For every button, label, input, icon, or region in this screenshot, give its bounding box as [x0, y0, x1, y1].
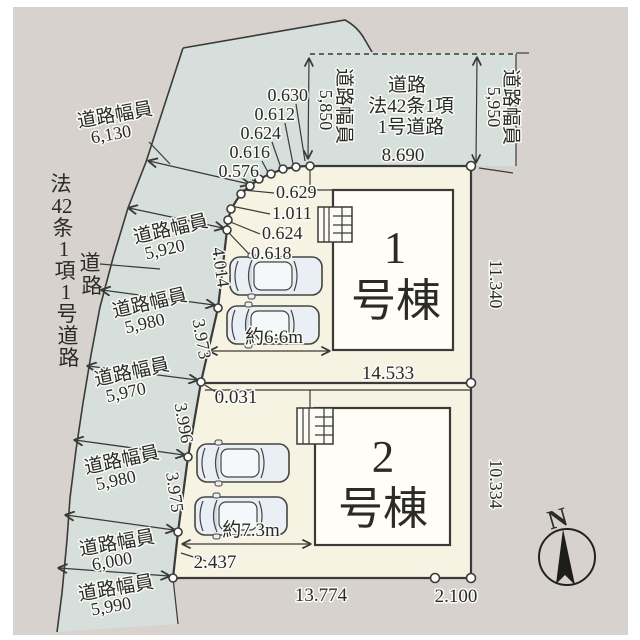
svg-text:路: 路 [82, 274, 103, 298]
svg-text:0.612: 0.612 [255, 104, 296, 124]
svg-text:0.616: 0.616 [230, 142, 271, 162]
left-road-callout: 道 路 [80, 251, 103, 298]
svg-text:路: 路 [59, 346, 80, 370]
building-2-name: 号棟 [338, 484, 428, 534]
svg-text:1: 1 [61, 280, 72, 304]
dim-2437: 2.437 [194, 552, 237, 573]
svg-text:0.629: 0.629 [276, 182, 317, 202]
site-plan: 1 号棟 2 号棟 道路 法42条1項 1号道路 8.690 道路幅員 5,85… [0, 0, 640, 640]
building-1-name: 号棟 [351, 276, 441, 326]
svg-text:道: 道 [80, 251, 101, 275]
svg-text:0.624: 0.624 [262, 223, 303, 243]
dim-0031: 0.031 [215, 387, 258, 408]
building-2-number: 2 [372, 432, 395, 482]
dim-11340: 11.340 [486, 260, 506, 309]
parking-width-lot1: 約6:6m [245, 326, 303, 348]
car-icon [197, 440, 289, 486]
top-road-width-left-value: 5,850 [316, 90, 336, 131]
svg-text:法: 法 [51, 172, 72, 196]
svg-text:0.630: 0.630 [268, 85, 309, 105]
dim-13774: 13.774 [295, 585, 348, 606]
svg-text:1.011: 1.011 [272, 203, 312, 223]
building-1-porch [318, 207, 352, 242]
dim-14533: 14.533 [362, 363, 414, 384]
top-road-width-right-value: 5,950 [484, 87, 504, 128]
top-road-name-3: 1号道路 [378, 116, 445, 138]
top-road-name-2: 法42条1項 [368, 95, 454, 117]
building-2-porch [297, 408, 333, 444]
svg-text:号: 号 [57, 302, 78, 326]
svg-text:0.624: 0.624 [241, 123, 282, 143]
top-road-name-1: 道路 [388, 74, 426, 96]
parking-width-lot2: 約7.3m [222, 519, 280, 541]
site-plan-svg: 1 号棟 2 号棟 道路 法42条1項 1号道路 8.690 道路幅員 5,85… [0, 0, 640, 640]
svg-text:0.576: 0.576 [219, 161, 260, 181]
dim-frontage: 8.690 [382, 145, 425, 166]
dim-10334: 10.334 [486, 459, 506, 509]
svg-text:0.618: 0.618 [251, 243, 292, 263]
svg-text:1: 1 [59, 237, 70, 261]
dim-2100: 2.100 [435, 586, 478, 607]
building-1-number: 1 [384, 223, 407, 273]
svg-text:道: 道 [58, 324, 79, 348]
svg-text:42: 42 [52, 194, 73, 218]
